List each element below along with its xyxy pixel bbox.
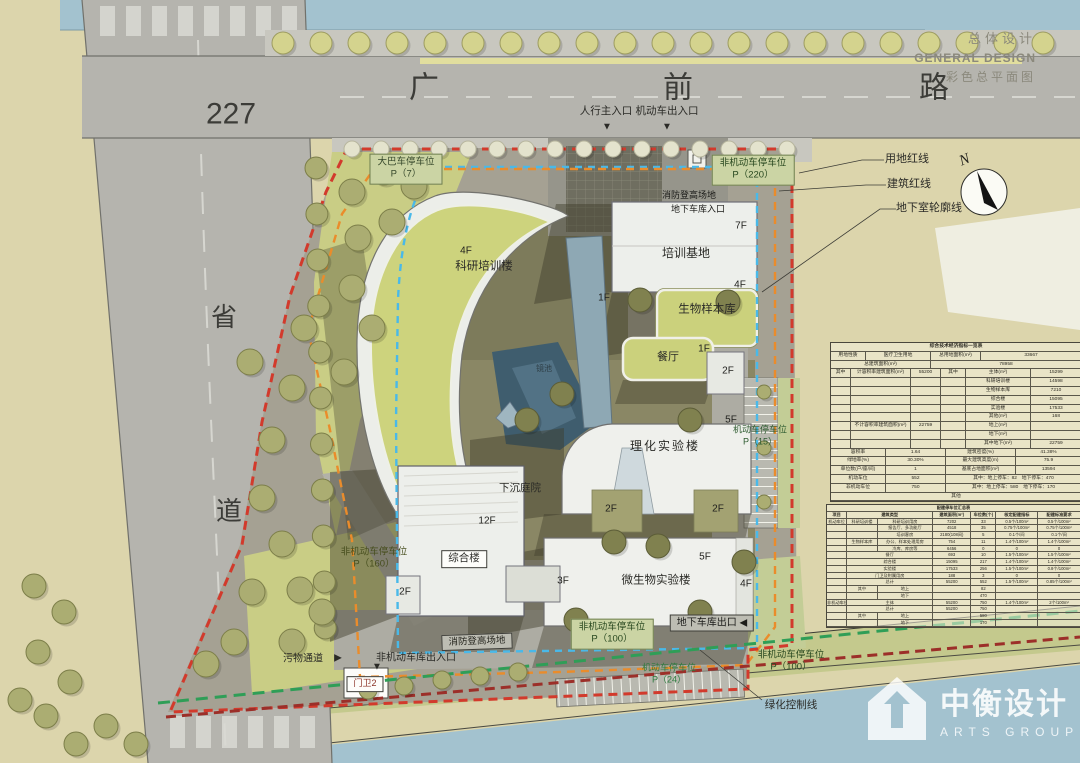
table-cell: 非机动车位 [831,484,886,492]
road-guangqian-char-1: 广 [409,69,439,108]
table-cell [827,559,847,565]
table-cell [941,422,966,430]
table-cell: 建筑类型 [847,512,933,518]
table-cell: 报告厅、多功能厅 [878,525,934,531]
table-row: 机动车位科研培训楼科研培训用房7202330.5个/100m²0.5个/100m… [827,519,1080,526]
table-cell: 7202 [933,519,971,525]
table-cell: 基底占地面积(m²) [946,466,1016,474]
table-row: 地下470 [827,593,1080,600]
integrated-building-label: 综合楼 [441,550,487,568]
table-cell: 33667 [981,352,1080,360]
table-cell [831,405,851,413]
table-cell: 地下 [878,620,934,626]
table-cell: 6456 [933,546,971,552]
table-row: 总建筑面积(m²)78958 [831,361,1080,370]
sheet-series-title: 总体设计 [914,28,1036,47]
nonmotor-parking-west-label: 非机动车停车位 P（160） [341,547,408,572]
table-cell [911,431,941,439]
table-cell: 核定配建指标 [996,512,1038,518]
table-cell: 地上 [878,613,934,619]
parking-summary-table: 配建停车位汇总表项目建筑类型建筑面积(m²)车位数(个)核定配建指标配建标准要求… [826,504,1080,628]
table-cell: 0.8个/100m² [1038,566,1080,572]
table-row: 综合技术经济指标一览表 [831,343,1080,352]
table-cell: 科研培训用房 [878,519,934,525]
table-row: 综合楼150952171.4个/100m²1.4个/100m² [827,559,1080,566]
table-cell: 生物样本库 [966,387,1031,395]
table-cell [996,613,1038,619]
floor-1f-center: 1F [598,292,610,305]
table-cell: 217 [971,559,996,565]
floor-2f-court-east: 2F [712,503,724,516]
table-cell [831,431,851,439]
table-cell [911,378,941,386]
table-cell: 其他(m²) [966,413,1031,421]
table-cell: 3 [971,573,996,579]
table-cell: 1.64 [886,449,946,457]
table-cell: 1 [886,466,946,474]
nonmotor-parking-southeast-label: 非机动车停车位 P（100） [758,650,825,675]
table-cell: 552 [971,579,996,585]
waste-passage-arrow: ▶ [334,652,342,665]
table-row: 餐厅693101.5个/100m²1.5个/100m² [827,552,1080,559]
table-cell: 1.4个/100m² [996,600,1038,606]
table-row: 冷库、库房等6456000 [827,546,1080,553]
table-cell [996,620,1038,626]
table-cell [933,620,971,626]
ped-entrance-arrow: ▼ [602,121,612,134]
table-cell [851,396,911,404]
table-cell [941,396,966,404]
nonmotor-garage-arrow: ▼ [372,661,382,674]
table-row: 机动车位552其中：地上停车：82 地下停车：470 [831,475,1080,484]
table-cell [941,387,966,395]
table-cell [831,387,851,395]
table-cell: 1.4个/100m² [996,539,1038,545]
table-cell: 0.1个/间 [996,532,1038,538]
table-cell [911,405,941,413]
fire-access-south-label: 消防登高场地 [441,633,513,652]
table-cell: 生物样本库 [847,539,877,545]
table-cell: 计容积率建筑面积(m²) [851,369,911,377]
table-cell: 41.38% [1016,449,1080,457]
sunken-courtyard-label: 下沉庭院 [499,482,541,496]
table-cell: 10 [971,552,996,558]
table-cell: 1.5个/100m² [996,566,1038,572]
table-cell [827,573,847,579]
table-cell: 750 [971,606,996,612]
table-cell [911,396,941,404]
logo-house-icon [866,676,928,742]
table-row: 非机动车位主体552007501.4个/100m²2个/100m² [827,600,1080,607]
canteen-label: 餐厅 [657,350,679,364]
table-cell: 绿地率(%) [831,457,886,465]
table-cell [933,613,971,619]
table-cell: 2180(108间) [933,532,971,538]
table-cell: 其中 [847,613,877,619]
table-cell [851,413,911,421]
table-cell: 55200 [933,606,971,612]
table-row: 容积率1.64建筑密度(%)41.38% [831,449,1080,458]
table-cell: 30.30% [886,457,946,465]
table-cell: 其中地下(m²) [966,440,1031,448]
table-cell: 医疗卫生用地 [866,352,931,360]
econ-indicators-table: 综合技术经济指标一览表用地性质医疗卫生用地总用地面积(m²)33667总建筑面积… [830,342,1080,502]
table-row: 其中地下(m²)22759 [831,440,1080,449]
table-cell: 1.5个/100m² [1038,552,1080,558]
table-row: 科研培训楼14598 [831,378,1080,387]
table-cell: 168 [1031,413,1080,421]
table-cell: 综合楼 [847,559,933,565]
table-cell: 750 [886,484,946,492]
table-cell [827,532,847,538]
table-cell: 0.5个/100m² [1038,519,1080,525]
table-row: 用地性质医疗卫生用地总用地面积(m²)33667 [831,352,1080,361]
research-training-floors: 4F [460,245,472,258]
table-cell: 1.4个/100m² [1038,539,1080,545]
table-cell: 55200 [911,369,941,377]
floor-2f-court-west: 2F [605,503,617,516]
table-row: 其他(m²)168 [831,413,1080,422]
microbio-lab-floors: 5F [699,551,711,564]
road-guangqian-char-2: 前 [663,69,693,108]
table-cell: 其中：地上停车：580 地下停车：170 [946,484,1080,492]
table-cell: 22759 [911,422,941,430]
ped-main-entrance-label: 人行主入口 [580,105,633,119]
table-row: 其他 [831,493,1080,502]
table-cell [1031,431,1080,439]
table-cell: 55200 [933,579,971,585]
table-cell: 1.5个/100m² [996,579,1038,585]
table-cell [847,532,877,538]
table-cell: 培训客房 [878,532,934,538]
waste-passage-label: 污物通道 [283,653,323,666]
nonmotor-parking-south-label: 非机动车停车位 P（100） [571,619,654,650]
table-row: 单位数(户/座/间)1基底占地面积(m²)13594 [831,466,1080,475]
table-cell [1038,620,1080,626]
table-cell: 0.85个/100m² [1038,579,1080,585]
table-cell [911,387,941,395]
table-cell [1038,613,1080,619]
table-cell [827,525,847,531]
table-cell [941,440,966,448]
table-row: 其中地上82 [827,586,1080,593]
training-base-label: 培训基地 [662,246,710,262]
canteen-floors: 1F [698,343,710,356]
site-plan-sheet: 广前路227省道人行主入口▼机动车出入口▼大巴车停车位 P（7）非机动车停车位 … [0,0,1080,763]
table-cell [831,440,851,448]
physchem-lab-label: 理化实验楼 [630,439,700,455]
table-cell: 综合楼 [966,396,1031,404]
table-cell [831,413,851,421]
floor-2f-west: 2F [399,586,411,599]
table-cell: 0 [1038,573,1080,579]
table-cell: 15095 [933,559,971,565]
table-cell: 总计 [847,606,933,612]
table-cell: 13594 [1016,466,1080,474]
table-row: 不计容积率建筑面积(m²)22759地上(m²) [831,422,1080,431]
table-cell: 256 [971,566,996,572]
table-cell: 其中：地上停车：82 地下停车：470 [946,475,1080,483]
table-row: 绿地率(%)30.30%最大建筑高度(m)75.9 [831,457,1080,466]
table-cell: 0 [971,546,996,552]
table-cell: 750 [971,600,996,606]
table-row: 其中计容积率建筑面积(m²)55200其中主体(m²)15299 [831,369,1080,378]
legend-building-redline-label: 建筑红线 [887,177,931,191]
table-cell [831,422,851,430]
table-cell: 0.5个/100m² [996,519,1038,525]
table-cell: 其中 [831,369,851,377]
table-cell: 0 [996,546,1038,552]
table-cell: 其中 [941,369,966,377]
table-cell: 470 [971,593,996,599]
table-cell: 项目 [827,512,847,518]
table-cell [996,586,1038,592]
table-cell [941,405,966,413]
table-cell [827,613,847,619]
table-row: 实验楼175332561.5个/100m²0.8个/100m² [827,566,1080,573]
table-cell: 配建停车位汇总表 [827,505,1080,511]
table-cell: 75.9 [1016,457,1080,465]
table-cell: 4518 [933,525,971,531]
table-cell: 地上 [878,586,934,592]
research-training-label: 科研培训楼 [455,260,513,275]
table-cell: 580 [971,613,996,619]
table-cell: 建筑面积(m²) [933,512,971,518]
garage-exit-label: 地下车库出口 ◀ [670,615,754,632]
table-row: 地下170 [827,620,1080,627]
table-cell: 其中 [847,586,877,592]
road-shengdao-char-1: 省 [211,301,237,335]
table-cell [851,387,911,395]
table-cell: 0 [996,573,1038,579]
table-cell [851,405,911,413]
table-row: 生物样本库7210 [831,387,1080,396]
table-cell: 22759 [1031,440,1080,448]
table-cell: 55200 [933,600,971,606]
table-cell: 科研培训楼 [847,519,877,525]
table-cell: 17533 [933,566,971,572]
table-cell [847,620,877,626]
table-row: 项目建筑类型建筑面积(m²)车位数(个)核定配建指标配建标准要求 [827,512,1080,519]
logo-en-text: ARTS GROUP [940,725,1079,739]
table-row: 门卫及附属用房188300 [827,573,1080,580]
motor-parking-east-label: 机动车停车位 P（15） [733,424,787,447]
table-cell: 1.5个/100m² [996,552,1038,558]
fire-access-north-label: 消防登高场地 [662,190,716,202]
table-cell: 7210 [1031,387,1080,395]
table-cell [831,396,851,404]
table-cell [847,546,877,552]
table-cell [996,606,1038,612]
table-cell [831,378,851,386]
table-cell: 综合技术经济指标一览表 [831,343,1080,351]
table-cell: 机动车位 [827,519,847,525]
table-row: 配建停车位汇总表 [827,505,1080,512]
table-cell: 机动车位 [831,475,886,483]
physchem-lab-floors: 5F [725,414,737,427]
legend-land-redline-label: 用地红线 [885,152,929,166]
table-cell: 地下 [878,593,934,599]
table-cell [847,525,877,531]
table-cell [827,566,847,572]
table-row: 生物样本库办公、样本处理用房754111.4个/100m²1.4个/100m² [827,539,1080,546]
table-cell: 5 [971,532,996,538]
table-cell [827,539,847,545]
table-cell: 552 [886,475,946,483]
table-row: 其中地上580 [827,613,1080,620]
table-cell [941,431,966,439]
table-cell [1031,422,1080,430]
table-cell: 754 [933,539,971,545]
road-shengdao-char-2: 道 [216,495,242,529]
garage-entrance-north-label: 地下车库入口 [671,204,725,216]
table-cell: 非机动车位 [827,600,847,606]
vehicle-entrance-arrow: ▼ [662,121,672,134]
table-cell [851,378,911,386]
biosample-bank-label: 生物样本库 [678,303,736,318]
table-row: 报告厅、多功能厅4518350.75个/100m²0.75个/100m² [827,525,1080,532]
table-cell [933,586,971,592]
nonmotor-parking-north-label: 非机动车停车位 P（220） [712,155,795,186]
motor-parking-south-label: 机动车停车位 P（24） [642,662,696,685]
table-cell: 主体 [847,600,933,606]
table-cell: 33 [971,519,996,525]
table-cell: 主体(m²) [966,369,1031,377]
table-cell [827,593,847,599]
table-row: 实验楼17533 [831,405,1080,414]
training-base-floors: 7F [735,220,747,233]
table-cell: 餐厅 [847,552,933,558]
table-cell: 办公、样本处理用房 [878,539,934,545]
table-cell: 82 [971,586,996,592]
biosample-bank-floors: 4F [734,279,746,292]
table-cell: 总计 [847,579,933,585]
table-cell: 1.4个/100m² [996,559,1038,565]
table-cell [847,593,877,599]
road-227-label: 227 [206,95,256,134]
table-row: 总计552005521.5个/100m²0.85个/100m² [827,579,1080,586]
table-cell: 15095 [1031,396,1080,404]
microbio-lab-label: 微生物实验楼 [622,574,691,589]
table-cell: 实验楼 [966,405,1031,413]
table-cell [1038,606,1080,612]
table-cell: 11 [971,539,996,545]
table-cell: 车位数(个) [971,512,996,518]
floor-3f: 3F [557,575,569,588]
table-cell: 0.75个/100m² [1038,525,1080,531]
mirror-pond-label: 镜池 [536,364,552,374]
title-block: 总体设计 GENERAL DESIGN 彩色总平面图 [914,28,1036,85]
table-cell [996,593,1038,599]
table-cell: 容积率 [831,449,886,457]
table-cell [941,413,966,421]
table-cell: 地下(m²) [966,431,1031,439]
tower-floors: 12F [478,515,495,528]
table-cell: 总用地面积(m²) [931,352,981,360]
logo-cn-text: 中衡设计 [940,679,1079,723]
table-cell: 14598 [1031,378,1080,386]
sheet-series-title-en: GENERAL DESIGN [914,51,1036,65]
table-cell [827,552,847,558]
table-cell [933,593,971,599]
table-cell: 78958 [931,361,1080,369]
table-cell: 建筑密度(%) [946,449,1016,457]
north-compass: N [942,146,1026,235]
table-cell: 2个/100m² [1038,600,1080,606]
table-cell: 17533 [1031,405,1080,413]
table-row: 地下(m²) [831,431,1080,440]
table-cell: 配建标准要求 [1038,512,1080,518]
table-cell: 不计容积率建筑面积(m²) [851,422,911,430]
table-cell [827,586,847,592]
table-cell [941,378,966,386]
table-row: 总计55200750 [827,606,1080,613]
table-cell: 总建筑面积(m²) [831,361,931,369]
table-cell: 693 [933,552,971,558]
table-cell [1038,586,1080,592]
guard-2-label: 门卫2 [346,676,383,692]
table-cell [827,606,847,612]
table-cell [827,546,847,552]
bus-parking-label: 大巴车停车位 P（7） [369,154,442,185]
table-cell: 0 [1038,546,1080,552]
floor-2f-canteen-east: 2F [722,365,734,378]
table-cell: 最大建筑高度(m) [946,457,1016,465]
table-cell: 15299 [1031,369,1080,377]
table-cell: 用地性质 [831,352,866,360]
table-cell: 170 [971,620,996,626]
table-cell [1038,593,1080,599]
table-cell: 188 [933,573,971,579]
table-cell [827,579,847,585]
compass-north-label: N [956,150,973,169]
table-cell: 0.75个/100m² [996,525,1038,531]
table-row: 非机动车位750其中：地上停车：580 地下停车：170 [831,484,1080,493]
table-row: 综合楼15095 [831,396,1080,405]
green-control-line-label: 绿化控制线 [765,699,818,713]
table-cell: 冷库、库房等 [878,546,934,552]
sheet-title: 彩色总平面图 [914,68,1036,85]
table-cell [827,620,847,626]
table-cell [851,440,911,448]
vehicle-entrance-label: 机动车出入口 [636,105,699,119]
table-cell: 其他 [831,493,1080,501]
table-cell: 门卫及附属用房 [847,573,933,579]
table-cell: 实验楼 [847,566,933,572]
firm-logo: 中衡设计 ARTS GROUP [866,676,1079,742]
table-cell: 35 [971,525,996,531]
table-cell [851,431,911,439]
table-cell: 单位数(户/座/间) [831,466,886,474]
table-cell [911,440,941,448]
nonmotor-garage-entrance-label: 非机动车库出入口 [376,652,456,665]
table-cell: 1.4个/100m² [1038,559,1080,565]
table-cell: 科研培训楼 [966,378,1031,386]
table-cell: 0.1个/间 [1038,532,1080,538]
table-row: 培训客房2180(108间)50.1个/间0.1个/间 [827,532,1080,539]
floor-4f-microbio: 4F [740,578,752,591]
table-cell [911,413,941,421]
table-cell: 地上(m²) [966,422,1031,430]
